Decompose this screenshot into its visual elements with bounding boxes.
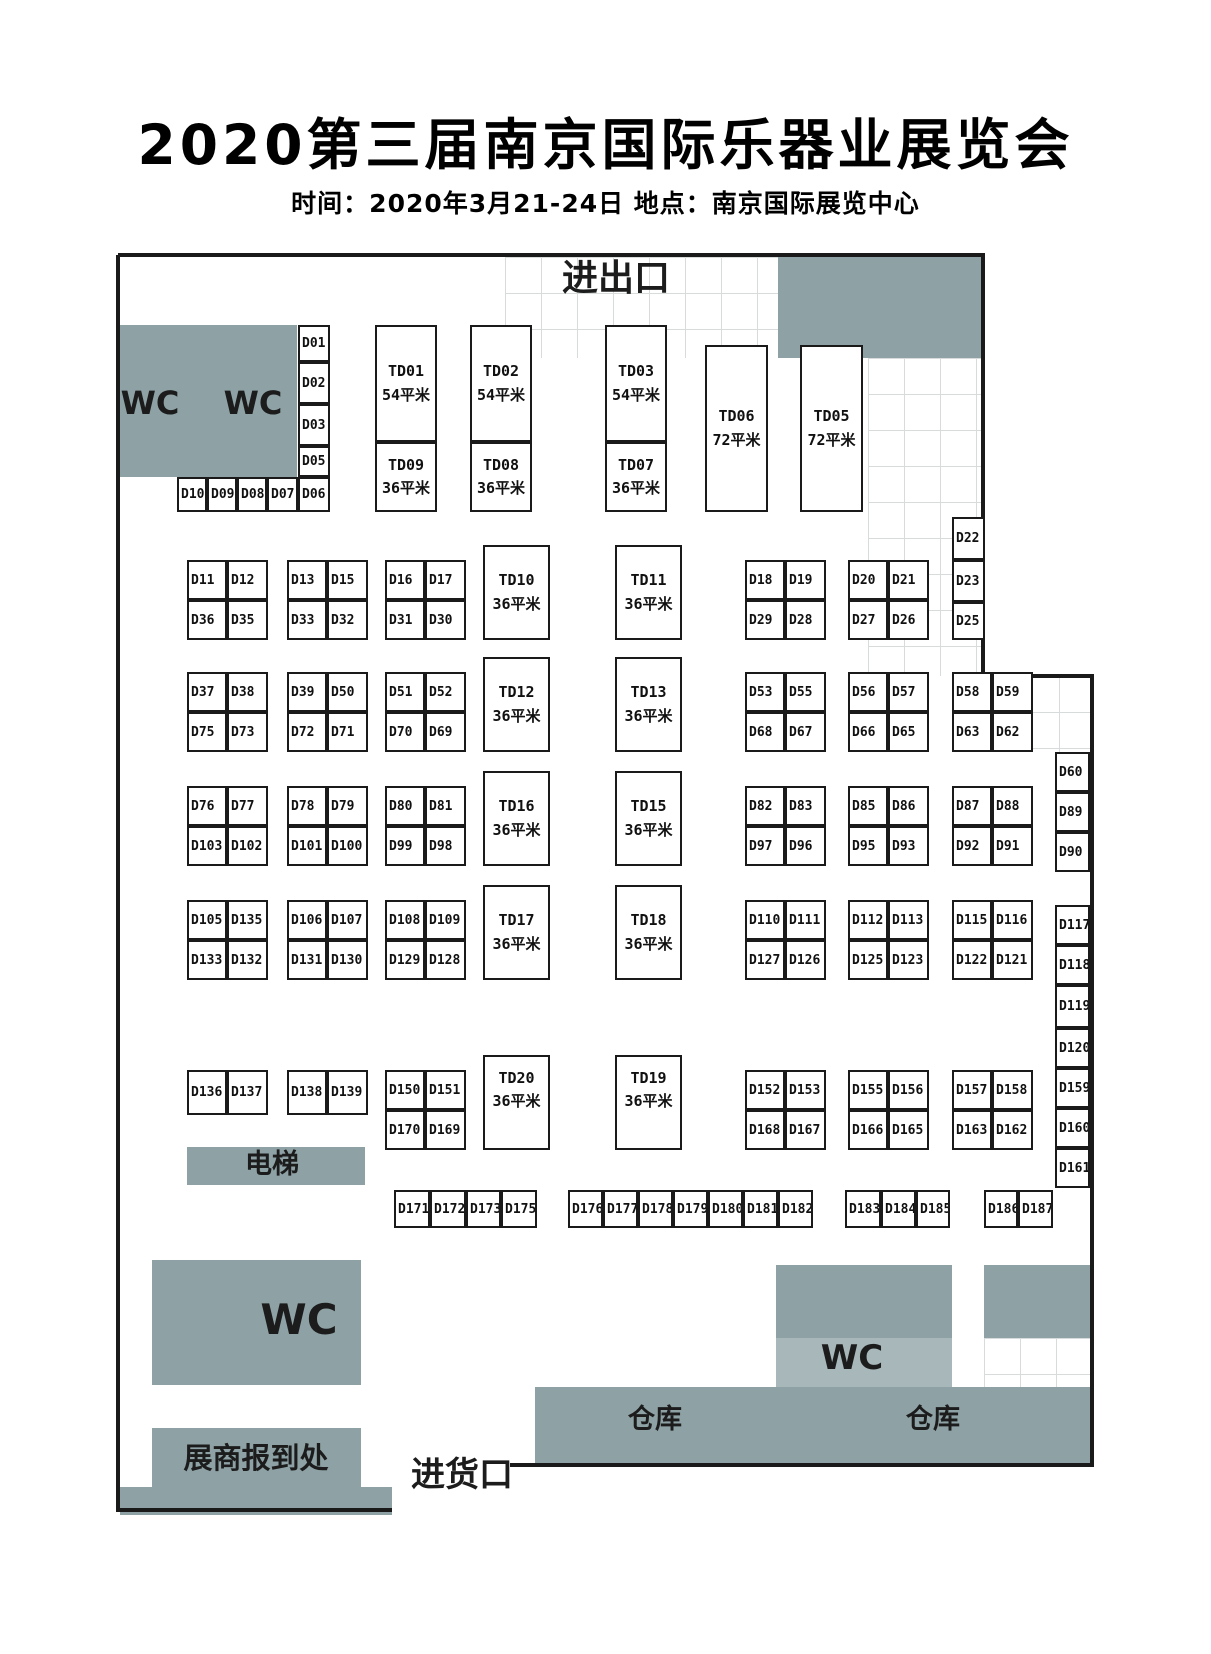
wc-top-left-label-2: WC xyxy=(133,387,373,419)
booth-TD05: TD0572平米 xyxy=(800,345,863,512)
booth-D68: D68 xyxy=(745,712,785,752)
booth-D91: D91 xyxy=(992,826,1033,866)
booth-D181: D181 xyxy=(743,1190,778,1228)
booth-D62: D62 xyxy=(992,712,1033,752)
booth-size: 36平米 xyxy=(492,933,540,956)
booth-D116: D116 xyxy=(992,900,1033,940)
booth-TD08: TD0836平米 xyxy=(470,442,532,512)
booth-D113: D113 xyxy=(888,900,929,940)
booth-D169: D169 xyxy=(425,1110,466,1150)
booth-D186: D186 xyxy=(984,1190,1018,1228)
booth-TD20: TD2036平米 xyxy=(483,1055,550,1150)
gridlines-4 xyxy=(984,1338,1090,1387)
booth-id: TD10 xyxy=(498,569,534,592)
booth-D73: D73 xyxy=(227,712,268,752)
booth-D123: D123 xyxy=(888,940,929,980)
booth-TD15: TD1536平米 xyxy=(615,771,682,866)
booth-TD18: TD1836平米 xyxy=(615,885,682,980)
registration-label: 展商报到处 xyxy=(136,1444,376,1473)
gridlines-3 xyxy=(1023,676,1092,752)
booth-D112: D112 xyxy=(848,900,888,940)
booth-D06: D06 xyxy=(298,477,330,512)
booth-D80: D80 xyxy=(385,786,425,826)
booth-id: TD17 xyxy=(498,909,534,932)
booth-D30: D30 xyxy=(425,600,466,640)
booth-size: 36平米 xyxy=(624,593,672,616)
booth-D128: D128 xyxy=(425,940,466,980)
booth-id: TD16 xyxy=(498,795,534,818)
booth-D71: D71 xyxy=(327,712,368,752)
booth-D119: D119 xyxy=(1055,985,1090,1028)
booth-id: TD01 xyxy=(388,360,424,383)
booth-D70: D70 xyxy=(385,712,425,752)
area-wc-bottom-right xyxy=(776,1265,952,1338)
booth-D122: D122 xyxy=(952,940,992,980)
booth-D136: D136 xyxy=(187,1070,227,1115)
booth-id: TD09 xyxy=(388,454,424,477)
booth-D158: D158 xyxy=(992,1070,1033,1110)
booth-size: 36平米 xyxy=(492,1090,540,1113)
booth-size: 54平米 xyxy=(612,384,660,407)
booth-D103: D103 xyxy=(187,826,227,866)
booth-D166: D166 xyxy=(848,1110,888,1150)
booth-D66: D66 xyxy=(848,712,888,752)
warehouse-label-1: 仓库 xyxy=(535,1406,775,1433)
booth-D87: D87 xyxy=(952,786,992,826)
booth-D129: D129 xyxy=(385,940,425,980)
booth-D106: D106 xyxy=(287,900,327,940)
booth-size: 36平米 xyxy=(382,477,430,500)
booth-size: 36平米 xyxy=(492,705,540,728)
booth-TD01: TD0154平米 xyxy=(375,325,437,442)
booth-D179: D179 xyxy=(673,1190,708,1228)
booth-D161: D161 xyxy=(1055,1148,1090,1188)
booth-D88: D88 xyxy=(992,786,1033,826)
booth-D120: D120 xyxy=(1055,1028,1090,1068)
area-top-right xyxy=(778,257,983,358)
exhibition-floor-plan-page: 2020第三届南京国际乐器业展览会 时间：2020年3月21-24日 地点：南京… xyxy=(0,0,1211,1654)
booth-D155: D155 xyxy=(848,1070,888,1110)
booth-D180: D180 xyxy=(708,1190,743,1228)
booth-size: 36平米 xyxy=(624,819,672,842)
floor-plan: D01D02D03D05D06D10D09D08D07D22D23D25D60D… xyxy=(0,0,1211,1654)
booth-D12: D12 xyxy=(227,560,268,600)
booth-D37: D37 xyxy=(187,672,227,712)
booth-D05: D05 xyxy=(298,446,330,477)
booth-D162: D162 xyxy=(992,1110,1033,1150)
booth-D86: D86 xyxy=(888,786,929,826)
booth-size: 36平米 xyxy=(624,705,672,728)
booth-D178: D178 xyxy=(638,1190,673,1228)
booth-D105: D105 xyxy=(187,900,227,940)
booth-id: TD06 xyxy=(718,405,754,428)
booth-D23: D23 xyxy=(952,560,985,602)
booth-D99: D99 xyxy=(385,826,425,866)
booth-TD03: TD0354平米 xyxy=(605,325,667,442)
booth-id: TD15 xyxy=(630,795,666,818)
booth-D165: D165 xyxy=(888,1110,929,1150)
booth-TD17: TD1736平米 xyxy=(483,885,550,980)
booth-D21: D21 xyxy=(888,560,929,600)
booth-D175: D175 xyxy=(501,1190,537,1228)
booth-D78: D78 xyxy=(287,786,327,826)
booth-D89: D89 xyxy=(1055,792,1090,832)
booth-D59: D59 xyxy=(992,672,1033,712)
booth-D25: D25 xyxy=(952,602,985,640)
booth-D56: D56 xyxy=(848,672,888,712)
wc-bottom-left-label: WC xyxy=(179,1299,419,1341)
booth-D173: D173 xyxy=(466,1190,501,1228)
booth-D110: D110 xyxy=(745,900,785,940)
booth-D57: D57 xyxy=(888,672,929,712)
booth-D152: D152 xyxy=(745,1070,785,1110)
booth-TD10: TD1036平米 xyxy=(483,545,550,640)
booth-D182: D182 xyxy=(778,1190,813,1228)
booth-id: TD05 xyxy=(813,405,849,428)
booth-D29: D29 xyxy=(745,600,785,640)
booth-D135: D135 xyxy=(227,900,268,940)
booth-D81: D81 xyxy=(425,786,466,826)
booth-D76: D76 xyxy=(187,786,227,826)
booth-size: 54平米 xyxy=(382,384,430,407)
booth-size: 36平米 xyxy=(624,1090,672,1113)
booth-D51: D51 xyxy=(385,672,425,712)
booth-D83: D83 xyxy=(785,786,826,826)
booth-size: 54平米 xyxy=(477,384,525,407)
booth-D126: D126 xyxy=(785,940,826,980)
booth-D168: D168 xyxy=(745,1110,785,1150)
booth-D150: D150 xyxy=(385,1070,425,1110)
booth-D111: D111 xyxy=(785,900,826,940)
booth-D15: D15 xyxy=(327,560,368,600)
booth-D101: D101 xyxy=(287,826,327,866)
booth-D157: D157 xyxy=(952,1070,992,1110)
booth-id: TD03 xyxy=(618,360,654,383)
entrance-label: 进出口 xyxy=(496,261,736,297)
booth-D27: D27 xyxy=(848,600,888,640)
booth-size: 72平米 xyxy=(712,429,760,452)
booth-D109: D109 xyxy=(425,900,466,940)
booth-D67: D67 xyxy=(785,712,826,752)
booth-D63: D63 xyxy=(952,712,992,752)
booth-D32: D32 xyxy=(327,600,368,640)
booth-D177: D177 xyxy=(603,1190,638,1228)
booth-D185: D185 xyxy=(916,1190,950,1228)
booth-D108: D108 xyxy=(385,900,425,940)
booth-D138: D138 xyxy=(287,1070,327,1115)
booth-size: 36平米 xyxy=(624,933,672,956)
booth-D18: D18 xyxy=(745,560,785,600)
booth-D65: D65 xyxy=(888,712,929,752)
booth-D28: D28 xyxy=(785,600,826,640)
booth-D90: D90 xyxy=(1055,832,1090,872)
booth-id: TD07 xyxy=(618,454,654,477)
booth-D39: D39 xyxy=(287,672,327,712)
booth-D163: D163 xyxy=(952,1110,992,1150)
booth-D53: D53 xyxy=(745,672,785,712)
booth-D82: D82 xyxy=(745,786,785,826)
booth-D132: D132 xyxy=(227,940,268,980)
booth-D72: D72 xyxy=(287,712,327,752)
booth-D77: D77 xyxy=(227,786,268,826)
booth-TD11: TD1136平米 xyxy=(615,545,682,640)
booth-size: 36平米 xyxy=(477,477,525,500)
booth-D131: D131 xyxy=(287,940,327,980)
booth-D13: D13 xyxy=(287,560,327,600)
booth-D121: D121 xyxy=(992,940,1033,980)
booth-size: 36平米 xyxy=(612,477,660,500)
booth-D55: D55 xyxy=(785,672,826,712)
booth-D69: D69 xyxy=(425,712,466,752)
booth-D75: D75 xyxy=(187,712,227,752)
wc-bottom-right-label: WC xyxy=(732,1341,972,1375)
booth-D184: D184 xyxy=(881,1190,916,1228)
booth-D125: D125 xyxy=(848,940,888,980)
booth-TD13: TD1336平米 xyxy=(615,657,682,752)
booth-D79: D79 xyxy=(327,786,368,826)
booth-D52: D52 xyxy=(425,672,466,712)
booth-D26: D26 xyxy=(888,600,929,640)
booth-D133: D133 xyxy=(187,940,227,980)
booth-D20: D20 xyxy=(848,560,888,600)
booth-D10: D10 xyxy=(177,477,207,512)
booth-D100: D100 xyxy=(327,826,368,866)
booth-D16: D16 xyxy=(385,560,425,600)
booth-D156: D156 xyxy=(888,1070,929,1110)
booth-D98: D98 xyxy=(425,826,466,866)
booth-size: 36平米 xyxy=(492,593,540,616)
booth-D172: D172 xyxy=(430,1190,466,1228)
booth-id: TD02 xyxy=(483,360,519,383)
booth-D115: D115 xyxy=(952,900,992,940)
booth-D35: D35 xyxy=(227,600,268,640)
area-grey-right xyxy=(984,1265,1090,1338)
booth-D117: D117 xyxy=(1055,905,1090,945)
booth-D127: D127 xyxy=(745,940,785,980)
booth-size: 72平米 xyxy=(807,429,855,452)
booth-id: TD13 xyxy=(630,681,666,704)
booth-D176: D176 xyxy=(568,1190,603,1228)
booth-D183: D183 xyxy=(845,1190,881,1228)
booth-D137: D137 xyxy=(227,1070,268,1115)
booth-D171: D171 xyxy=(394,1190,430,1228)
warehouse-label-2: 仓库 xyxy=(813,1406,1053,1433)
booth-D139: D139 xyxy=(327,1070,368,1115)
booth-D33: D33 xyxy=(287,600,327,640)
booth-D31: D31 xyxy=(385,600,425,640)
booth-D118: D118 xyxy=(1055,945,1090,985)
booth-id: TD11 xyxy=(630,569,666,592)
booth-D97: D97 xyxy=(745,826,785,866)
booth-id: TD19 xyxy=(630,1067,666,1090)
booth-TD06: TD0672平米 xyxy=(705,345,768,512)
booth-D92: D92 xyxy=(952,826,992,866)
booth-TD09: TD0936平米 xyxy=(375,442,437,512)
booth-D159: D159 xyxy=(1055,1068,1090,1108)
booth-D58: D58 xyxy=(952,672,992,712)
booth-D95: D95 xyxy=(848,826,888,866)
booth-id: TD20 xyxy=(498,1067,534,1090)
booth-id: TD12 xyxy=(498,681,534,704)
booth-TD16: TD1636平米 xyxy=(483,771,550,866)
goods-entrance-label: 进货口 xyxy=(342,1458,582,1492)
booth-size: 36平米 xyxy=(492,819,540,842)
elevator-label: 电梯 xyxy=(152,1151,392,1178)
booth-D130: D130 xyxy=(327,940,368,980)
booth-D85: D85 xyxy=(848,786,888,826)
booth-D08: D08 xyxy=(237,477,267,512)
booth-D17: D17 xyxy=(425,560,466,600)
booth-D11: D11 xyxy=(187,560,227,600)
booth-D102: D102 xyxy=(227,826,268,866)
booth-D107: D107 xyxy=(327,900,368,940)
booth-D01: D01 xyxy=(298,325,330,362)
booth-D60: D60 xyxy=(1055,752,1090,792)
booth-D170: D170 xyxy=(385,1110,425,1150)
booth-D36: D36 xyxy=(187,600,227,640)
booth-D96: D96 xyxy=(785,826,826,866)
booth-D22: D22 xyxy=(952,517,985,560)
booth-D38: D38 xyxy=(227,672,268,712)
booth-D09: D09 xyxy=(207,477,237,512)
booth-id: TD18 xyxy=(630,909,666,932)
booth-TD12: TD1236平米 xyxy=(483,657,550,752)
booth-TD07: TD0736平米 xyxy=(605,442,667,512)
booth-id: TD08 xyxy=(483,454,519,477)
booth-D19: D19 xyxy=(785,560,826,600)
booth-TD02: TD0254平米 xyxy=(470,325,532,442)
booth-TD19: TD1936平米 xyxy=(615,1055,682,1150)
booth-D07: D07 xyxy=(267,477,298,512)
booth-D153: D153 xyxy=(785,1070,826,1110)
booth-D160: D160 xyxy=(1055,1108,1090,1148)
booth-D93: D93 xyxy=(888,826,929,866)
booth-D187: D187 xyxy=(1018,1190,1053,1228)
booth-D167: D167 xyxy=(785,1110,826,1150)
booth-D50: D50 xyxy=(327,672,368,712)
booth-D151: D151 xyxy=(425,1070,466,1110)
